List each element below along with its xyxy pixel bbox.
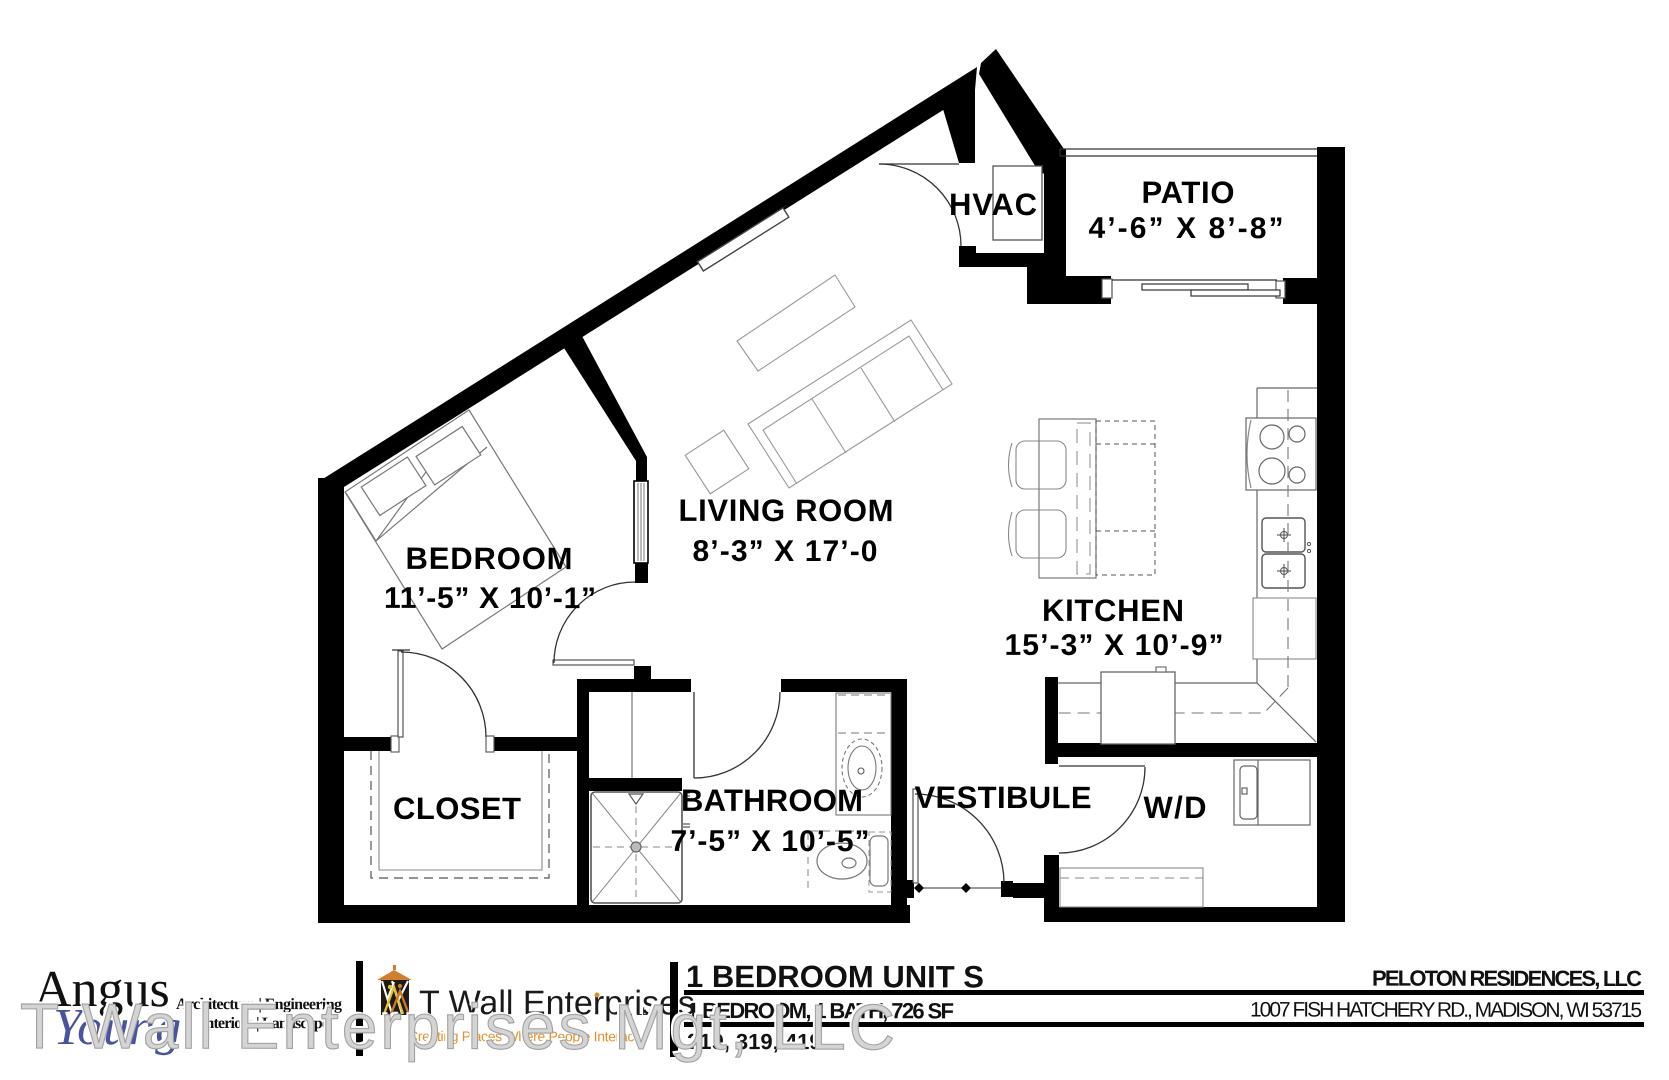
svg-text:8’-3” X 17’-0: 8’-3” X 17’-0 [692, 535, 877, 568]
svg-text:LIVING ROOM: LIVING ROOM [678, 493, 893, 528]
svg-text:T Wall Enterprises Mgt, LLC: T Wall Enterprises Mgt, LLC [20, 990, 895, 1063]
svg-text:15’-3” X 10’-9”: 15’-3” X 10’-9” [1004, 629, 1223, 662]
svg-text:BATHROOM: BATHROOM [681, 783, 863, 818]
svg-text:PATIO: PATIO [1141, 175, 1234, 210]
svg-text:HVAC: HVAC [949, 187, 1037, 222]
svg-text:7’-5” X 10’-5”: 7’-5” X 10’-5” [670, 825, 869, 858]
svg-text:11’-5” X 10’-1”: 11’-5” X 10’-1” [384, 582, 596, 615]
svg-text:KITCHEN: KITCHEN [1042, 593, 1184, 628]
svg-text:BEDROOM: BEDROOM [405, 541, 572, 576]
svg-text:CLOSET: CLOSET [393, 791, 521, 826]
svg-text:1007 FISH HATCHERY RD., MADISO: 1007 FISH HATCHERY RD., MADISON, WI 5371… [1250, 998, 1642, 1022]
svg-text:VESTIBULE: VESTIBULE [914, 780, 1091, 815]
svg-text:W/D: W/D [1143, 790, 1206, 825]
svg-text:4’-6” X 8’-8”: 4’-6” X 8’-8” [1088, 212, 1283, 245]
svg-text:PELOTON RESIDENCES, LLC: PELOTON RESIDENCES, LLC [1372, 966, 1642, 991]
